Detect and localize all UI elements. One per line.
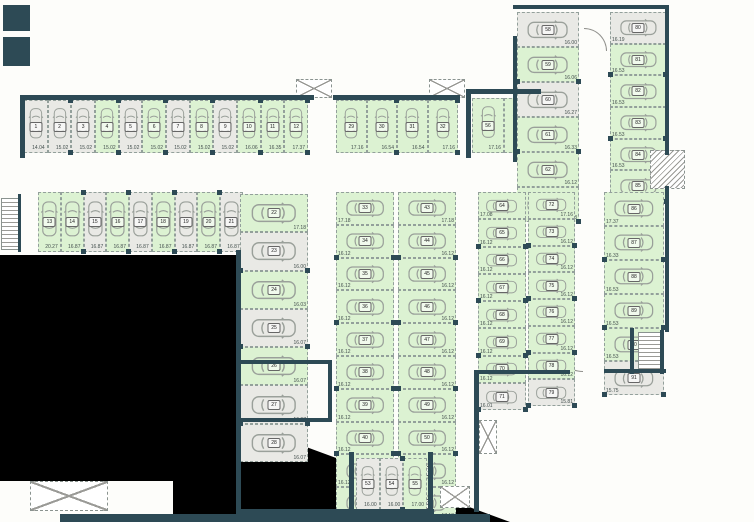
space-area-label: 16.87 (113, 244, 126, 250)
parking-space-86[interactable]: 8617.37 (604, 192, 664, 226)
space-area-label: 16.12 (480, 240, 493, 246)
parking-space-7[interactable]: 715.02 (166, 100, 190, 153)
space-area-label: 16.12 (560, 319, 573, 325)
space-area-label: 16.54 (381, 145, 394, 151)
space-number-badge: 20 (202, 217, 215, 227)
wall (513, 5, 669, 9)
parking-space-32[interactable]: 3217.16 (428, 100, 459, 153)
space-number-badge: 4 (100, 122, 113, 132)
space-number-badge: 19 (179, 217, 192, 227)
parking-space-53[interactable]: 5316.00 (356, 458, 380, 510)
wall (18, 194, 21, 252)
parking-space-23[interactable]: 2316.00 (240, 232, 308, 270)
space-number-badge: 71 (496, 392, 509, 402)
wall (428, 452, 433, 512)
space-area-label: 16.12 (441, 316, 454, 322)
parking-row-53-55: 5316.00 5416.00 5517.00 (356, 458, 427, 510)
parking-space-13[interactable]: 1320.27 (38, 192, 61, 252)
parking-space-81[interactable]: 8116.53 (610, 44, 666, 76)
space-number-badge: 5 (124, 122, 137, 132)
space-number-badge: 85 (632, 181, 645, 191)
space-number-badge: 3 (77, 122, 90, 132)
space-number-badge: 45 (421, 269, 434, 279)
parking-space-18[interactable]: 1816.87 (152, 192, 175, 252)
space-number-badge: 75 (545, 281, 558, 291)
space-number-badge: 47 (421, 335, 434, 345)
parking-space-29[interactable]: 2917.16 (336, 100, 367, 153)
space-area-label: 17.18 (338, 218, 351, 224)
parking-column-43-52: 4317.18 4416.12 4516.12 4616.12 4716.12 (398, 192, 456, 420)
space-area-label: 17.18 (441, 218, 454, 224)
space-number-badge: 40 (359, 433, 372, 443)
wall (20, 95, 314, 100)
parking-space-45[interactable]: 4516.12 (398, 258, 456, 291)
parking-space-69[interactable]: 6916.12 (478, 328, 526, 355)
space-number-badge: 48 (421, 367, 434, 377)
parking-space-33[interactable]: 3317.18 (336, 192, 394, 225)
parking-space-72[interactable]: 7217.16 (528, 192, 575, 219)
parking-space-48[interactable]: 4816.12 (398, 356, 456, 389)
space-number-badge: 32 (436, 122, 449, 132)
space-area-label: 16.53 (612, 132, 625, 138)
parking-space-17[interactable]: 1716.87 (129, 192, 152, 252)
space-number-badge: 10 (242, 122, 255, 132)
space-area-label: 17.18 (293, 225, 306, 231)
parking-space-6[interactable]: 615.02 (142, 100, 166, 153)
parking-space-46[interactable]: 4616.12 (398, 290, 456, 323)
space-area-label: 17.37 (293, 145, 306, 151)
parking-space-20[interactable]: 2016.87 (197, 192, 220, 252)
space-number-badge: 84 (632, 150, 645, 160)
stairs (650, 150, 685, 189)
parking-space-22[interactable]: 2217.18 (240, 194, 308, 232)
parking-row-29-32: 2917.16 3016.54 3116.54 3217.16 (336, 100, 458, 153)
space-number-badge: 27 (268, 400, 281, 410)
parking-space-59[interactable]: 5916.06 (517, 47, 579, 82)
wall (630, 328, 634, 374)
space-number-badge: 44 (421, 236, 434, 246)
space-number-badge: 79 (545, 388, 558, 398)
space-area-label: 16.87 (159, 244, 172, 250)
space-number-badge: 38 (359, 367, 372, 377)
space-number-badge: 37 (359, 335, 372, 345)
parking-space-40[interactable]: 4016.12 (336, 422, 394, 455)
space-area-label: 16.12 (338, 316, 351, 322)
space-number-badge: 2 (53, 122, 66, 132)
wall (604, 369, 666, 373)
space-area-label: 16.12 (338, 415, 351, 421)
space-area-label: 16.07 (293, 378, 306, 384)
space-area-label: 14.04 (32, 145, 45, 151)
space-area-label: 17.08 (480, 212, 493, 218)
space-area-label: 16.12 (560, 239, 573, 245)
space-area-label: 16.12 (338, 251, 351, 257)
parking-space-5[interactable]: 515.02 (119, 100, 143, 153)
space-number-badge: 15 (88, 217, 101, 227)
parking-space-15[interactable]: 1516.87 (84, 192, 107, 252)
parking-space-26[interactable]: 2616.07 (240, 347, 308, 385)
parking-space-16[interactable]: 1616.87 (106, 192, 129, 252)
door-arc (584, 28, 607, 51)
space-number-badge: 31 (406, 122, 419, 132)
wall (466, 89, 471, 158)
space-area-label: 17.16 (488, 145, 501, 151)
space-number-badge: 72 (545, 200, 558, 210)
space-area-label: 16.07 (293, 340, 306, 346)
parking-space-9[interactable]: 915.02 (213, 100, 237, 153)
parking-space-12[interactable]: 1217.37 (284, 100, 308, 153)
parking-space-10[interactable]: 1016.06 (237, 100, 261, 153)
parking-space-89[interactable]: 8916.53 (604, 294, 664, 328)
space-number-badge: 23 (268, 246, 281, 256)
space-number-badge: 59 (542, 60, 555, 70)
space-number-badge: 68 (496, 310, 509, 320)
space-area-label: 16.53 (612, 68, 625, 74)
space-number-badge: 81 (632, 55, 645, 65)
parking-space-76[interactable]: 7616.12 (528, 299, 575, 326)
space-number-badge: 35 (359, 269, 372, 279)
space-area-label: 15.75 (606, 388, 619, 394)
wall (236, 509, 434, 514)
space-area-label: 16.19 (612, 37, 625, 43)
space-number-badge: 6 (148, 122, 161, 132)
space-number-badge: 8 (195, 122, 208, 132)
parking-column-22-28: 2217.18 2316.00 2416.03 2516.07 2616.07 (240, 194, 308, 345)
wall (236, 250, 241, 512)
space-number-badge: 76 (545, 307, 558, 317)
space-area-label: 15.81 (560, 399, 573, 405)
parking-space-78[interactable]: 7816.12 (528, 353, 575, 380)
shaft-box (479, 420, 497, 454)
space-area-label: 16.27 (564, 110, 577, 116)
wall (660, 330, 664, 374)
parking-column-64-71: 6417.08 6516.12 6616.12 6716.12 6816.12 (478, 192, 526, 374)
parking-space-39[interactable]: 3916.12 (336, 389, 394, 422)
space-number-badge: 80 (632, 23, 645, 33)
space-number-badge: 61 (542, 130, 555, 140)
bottom-wall (60, 514, 490, 522)
shaft-box (30, 481, 108, 511)
space-number-badge: 66 (496, 255, 509, 265)
space-area-label: 17.16 (560, 212, 573, 218)
parking-space-4[interactable]: 415.02 (95, 100, 119, 153)
space-area-label: 16.12 (480, 349, 493, 355)
parking-space-56[interactable]: 5617.16 (472, 98, 504, 153)
parking-space-38[interactable]: 3816.12 (336, 356, 394, 389)
space-area-label: 16.12 (441, 415, 454, 421)
space-number-badge: 43 (421, 203, 434, 213)
space-number-badge: 65 (496, 228, 509, 238)
space-area-label: 16.87 (68, 244, 81, 250)
space-area-label: 16.12 (480, 376, 493, 382)
space-number-badge: 89 (628, 306, 641, 316)
space-area-label: 16.12 (480, 294, 493, 300)
space-number-badge: 64 (496, 201, 509, 211)
parking-space-64[interactable]: 6417.08 (478, 192, 526, 219)
parking-space-54[interactable]: 5416.00 (380, 458, 404, 510)
space-area-label: 15.02 (103, 145, 116, 151)
space-area-label: 16.12 (560, 265, 573, 271)
space-number-badge: 34 (359, 236, 372, 246)
space-area-label: 16.00 (388, 502, 401, 508)
parking-space-35[interactable]: 3516.12 (336, 258, 394, 291)
space-area-label: 16.12 (441, 283, 454, 289)
space-number-badge: 28 (268, 438, 281, 448)
space-number-badge: 30 (375, 122, 388, 132)
space-number-badge: 29 (345, 122, 358, 132)
space-number-badge: 67 (496, 283, 509, 293)
parking-space-47[interactable]: 4716.12 (398, 323, 456, 356)
space-area-label: 17.00 (412, 502, 425, 508)
parking-space-83[interactable]: 8316.53 (610, 107, 666, 139)
space-number-badge: 14 (66, 217, 79, 227)
space-area-label: 16.53 (606, 321, 619, 327)
parking-space-30[interactable]: 3016.54 (367, 100, 398, 153)
space-number-badge: 86 (628, 204, 641, 214)
space-number-badge: 1 (29, 122, 42, 132)
space-number-badge: 49 (421, 400, 434, 410)
space-area-label: 17.16 (351, 145, 364, 151)
space-area-label: 15.02 (174, 145, 187, 151)
space-number-badge: 13 (43, 217, 56, 227)
parking-space-19[interactable]: 1916.87 (175, 192, 198, 252)
space-area-label: 16.00 (293, 264, 306, 270)
space-area-label: 15.02 (222, 145, 235, 151)
space-area-label: 16.53 (612, 100, 625, 106)
parking-row-1-12: 114.04 215.02 315.02 415.02 515.02 615.0… (24, 100, 308, 153)
parking-space-82[interactable]: 8216.53 (610, 75, 666, 107)
parking-space-37[interactable]: 3716.12 (336, 323, 394, 356)
space-number-badge: 83 (632, 118, 645, 128)
space-area-label: 16.12 (480, 321, 493, 327)
parking-space-28[interactable]: 2816.07 (240, 424, 308, 462)
space-number-badge: 60 (542, 95, 555, 105)
space-area-label: 16.00 (564, 40, 577, 46)
space-area-label: 20.27 (45, 244, 58, 250)
parking-space-8[interactable]: 815.02 (190, 100, 214, 153)
space-area-label: 15.02 (151, 145, 164, 151)
parking-space-88[interactable]: 8816.53 (604, 260, 664, 294)
parking-space-62[interactable]: 6216.12 (517, 152, 579, 187)
parking-space-87[interactable]: 8716.33 (604, 226, 664, 260)
space-area-label: 16.33 (564, 145, 577, 151)
space-number-badge: 18 (157, 217, 170, 227)
parking-space-77[interactable]: 7716.12 (528, 326, 575, 353)
space-area-label: 15.02 (80, 145, 93, 151)
space-number-badge: 54 (385, 479, 398, 489)
space-number-badge: 21 (225, 217, 238, 227)
parking-row-13-21: 1320.27 1416.87 1516.87 1616.87 1716.87 … (38, 192, 236, 252)
parking-space-49[interactable]: 4916.12 (398, 389, 456, 422)
space-area-label: 17.16 (442, 145, 455, 151)
space-number-badge: 46 (421, 302, 434, 312)
parking-space-55[interactable]: 5517.00 (403, 458, 427, 510)
parking-column-58-63: 5816.00 5916.06 6016.27 6116.33 6216.12 (517, 12, 579, 160)
space-area-label: 16.12 (338, 382, 351, 388)
parking-space-14[interactable]: 1416.87 (61, 192, 84, 252)
parking-space-36[interactable]: 3616.12 (336, 290, 394, 323)
space-number-badge: 55 (409, 479, 422, 489)
parking-space-65[interactable]: 6516.12 (478, 219, 526, 246)
space-area-label: 16.06 (564, 75, 577, 81)
parking-space-80[interactable]: 8016.19 (610, 12, 666, 44)
parking-column-86-91: 8617.37 8716.33 8816.53 8916.53 9016.53 (604, 192, 664, 327)
space-area-label: 16.12 (560, 346, 573, 352)
space-area-label: 16.00 (364, 502, 377, 508)
structure-block (3, 5, 30, 31)
space-area-label: 16.12 (338, 349, 351, 355)
space-number-badge: 91 (628, 373, 641, 383)
space-number-badge: 17 (134, 217, 147, 227)
parking-space-31[interactable]: 3116.54 (397, 100, 428, 153)
space-area-label: 16.53 (612, 163, 625, 169)
space-area-label: 16.87 (136, 244, 149, 250)
space-area-label: 15.02 (127, 145, 140, 151)
space-number-badge: 56 (482, 121, 495, 131)
wall (474, 372, 479, 512)
wall (236, 418, 332, 422)
wall (665, 186, 669, 332)
space-number-badge: 74 (545, 254, 558, 264)
parking-space-67[interactable]: 6716.12 (478, 274, 526, 301)
shaft-box (440, 486, 470, 508)
space-area-label: 16.12 (560, 292, 573, 298)
space-area-label: 16.12 (564, 180, 577, 186)
space-area-label: 16.12 (441, 382, 454, 388)
space-number-badge: 39 (359, 400, 372, 410)
wall (236, 360, 332, 364)
wall (328, 362, 332, 422)
parking-space-25[interactable]: 2516.07 (240, 309, 308, 347)
structure-block (3, 37, 30, 66)
space-area-label: 16.53 (606, 287, 619, 293)
parking-space-73[interactable]: 7316.12 (528, 219, 575, 246)
parking-space-43[interactable]: 4317.18 (398, 192, 456, 225)
space-area-label: 16.07 (293, 455, 306, 461)
space-area-label: 15.02 (198, 145, 211, 151)
space-area-label: 16.87 (91, 244, 104, 250)
space-number-badge: 9 (219, 122, 232, 132)
space-number-badge: 36 (359, 302, 372, 312)
space-number-badge: 22 (268, 208, 281, 218)
space-area-label: 16.53 (606, 354, 619, 360)
parking-column-80-85: 8016.19 8116.53 8216.53 8316.53 8416.53 (610, 12, 666, 146)
parking-space-1[interactable]: 114.04 (24, 100, 48, 153)
wall (474, 370, 570, 374)
space-number-badge: 7 (171, 122, 184, 132)
space-area-label: 16.33 (606, 253, 619, 259)
space-number-badge: 88 (628, 272, 641, 282)
space-area-label: 16.12 (441, 447, 454, 453)
space-number-badge: 25 (268, 323, 281, 333)
space-area-label: 16.01 (480, 403, 493, 409)
space-area-label: 16.35 (269, 145, 282, 151)
space-area-label: 16.12 (338, 283, 351, 289)
parking-space-66[interactable]: 6616.12 (478, 247, 526, 274)
space-number-badge: 77 (545, 334, 558, 344)
wall (349, 452, 354, 514)
space-number-badge: 12 (290, 122, 303, 132)
space-number-badge: 62 (542, 165, 555, 175)
parking-space-11[interactable]: 1116.35 (261, 100, 285, 153)
space-number-badge: 33 (359, 203, 372, 213)
parking-space-58[interactable]: 5816.00 (517, 12, 579, 47)
parking-space-3[interactable]: 315.02 (71, 100, 95, 153)
parking-space-79[interactable]: 7915.81 (528, 379, 575, 406)
space-number-badge: 50 (421, 433, 434, 443)
wall (513, 36, 517, 162)
space-number-badge: 87 (628, 238, 641, 248)
space-area-label: 16.06 (245, 145, 258, 151)
parking-space-61[interactable]: 6116.33 (517, 117, 579, 152)
parking-space-2[interactable]: 215.02 (48, 100, 72, 153)
space-area-label: 16.03 (293, 302, 306, 308)
parking-space-50[interactable]: 5016.12 (398, 422, 456, 455)
wall (665, 5, 669, 155)
parking-column-72-79: 7217.16 7316.12 7416.12 7516.12 7616.12 (528, 192, 575, 374)
space-number-badge: 73 (545, 227, 558, 237)
parking-space-34[interactable]: 3416.12 (336, 225, 394, 258)
space-area-label: 16.12 (441, 251, 454, 257)
space-number-badge: 69 (496, 337, 509, 347)
space-area-label: 16.87 (204, 244, 217, 250)
parking-space-44[interactable]: 4416.12 (398, 225, 456, 258)
parking-space-74[interactable]: 7416.12 (528, 246, 575, 273)
parking-space-24[interactable]: 2416.03 (240, 271, 308, 309)
space-number-badge: 11 (266, 122, 279, 132)
space-area-label: 17.37 (606, 219, 619, 225)
space-area-label: 15.02 (56, 145, 69, 151)
space-number-badge: 58 (542, 25, 555, 35)
space-area-label: 16.54 (412, 145, 425, 151)
space-number-badge: 82 (632, 86, 645, 96)
space-number-badge: 16 (111, 217, 124, 227)
space-area-label: 16.12 (441, 349, 454, 355)
space-number-badge: 24 (268, 285, 281, 295)
parking-column-33-42: 3317.18 3416.12 3516.12 3616.12 3716.12 (336, 192, 394, 420)
parking-space-75[interactable]: 7516.12 (528, 272, 575, 299)
parking-space-60[interactable]: 6016.27 (517, 82, 579, 117)
wall (333, 95, 460, 100)
parking-space-68[interactable]: 6816.12 (478, 301, 526, 328)
space-number-badge: 53 (361, 479, 374, 489)
wall (20, 95, 25, 158)
space-area-label: 16.12 (480, 267, 493, 273)
space-area-label: 16.87 (182, 244, 195, 250)
parking-floor-plan: 114.04 215.02 315.02 415.02 515.02 615.0… (0, 0, 754, 522)
wall (466, 89, 541, 94)
parking-space-71[interactable]: 7116.01 (478, 383, 526, 410)
